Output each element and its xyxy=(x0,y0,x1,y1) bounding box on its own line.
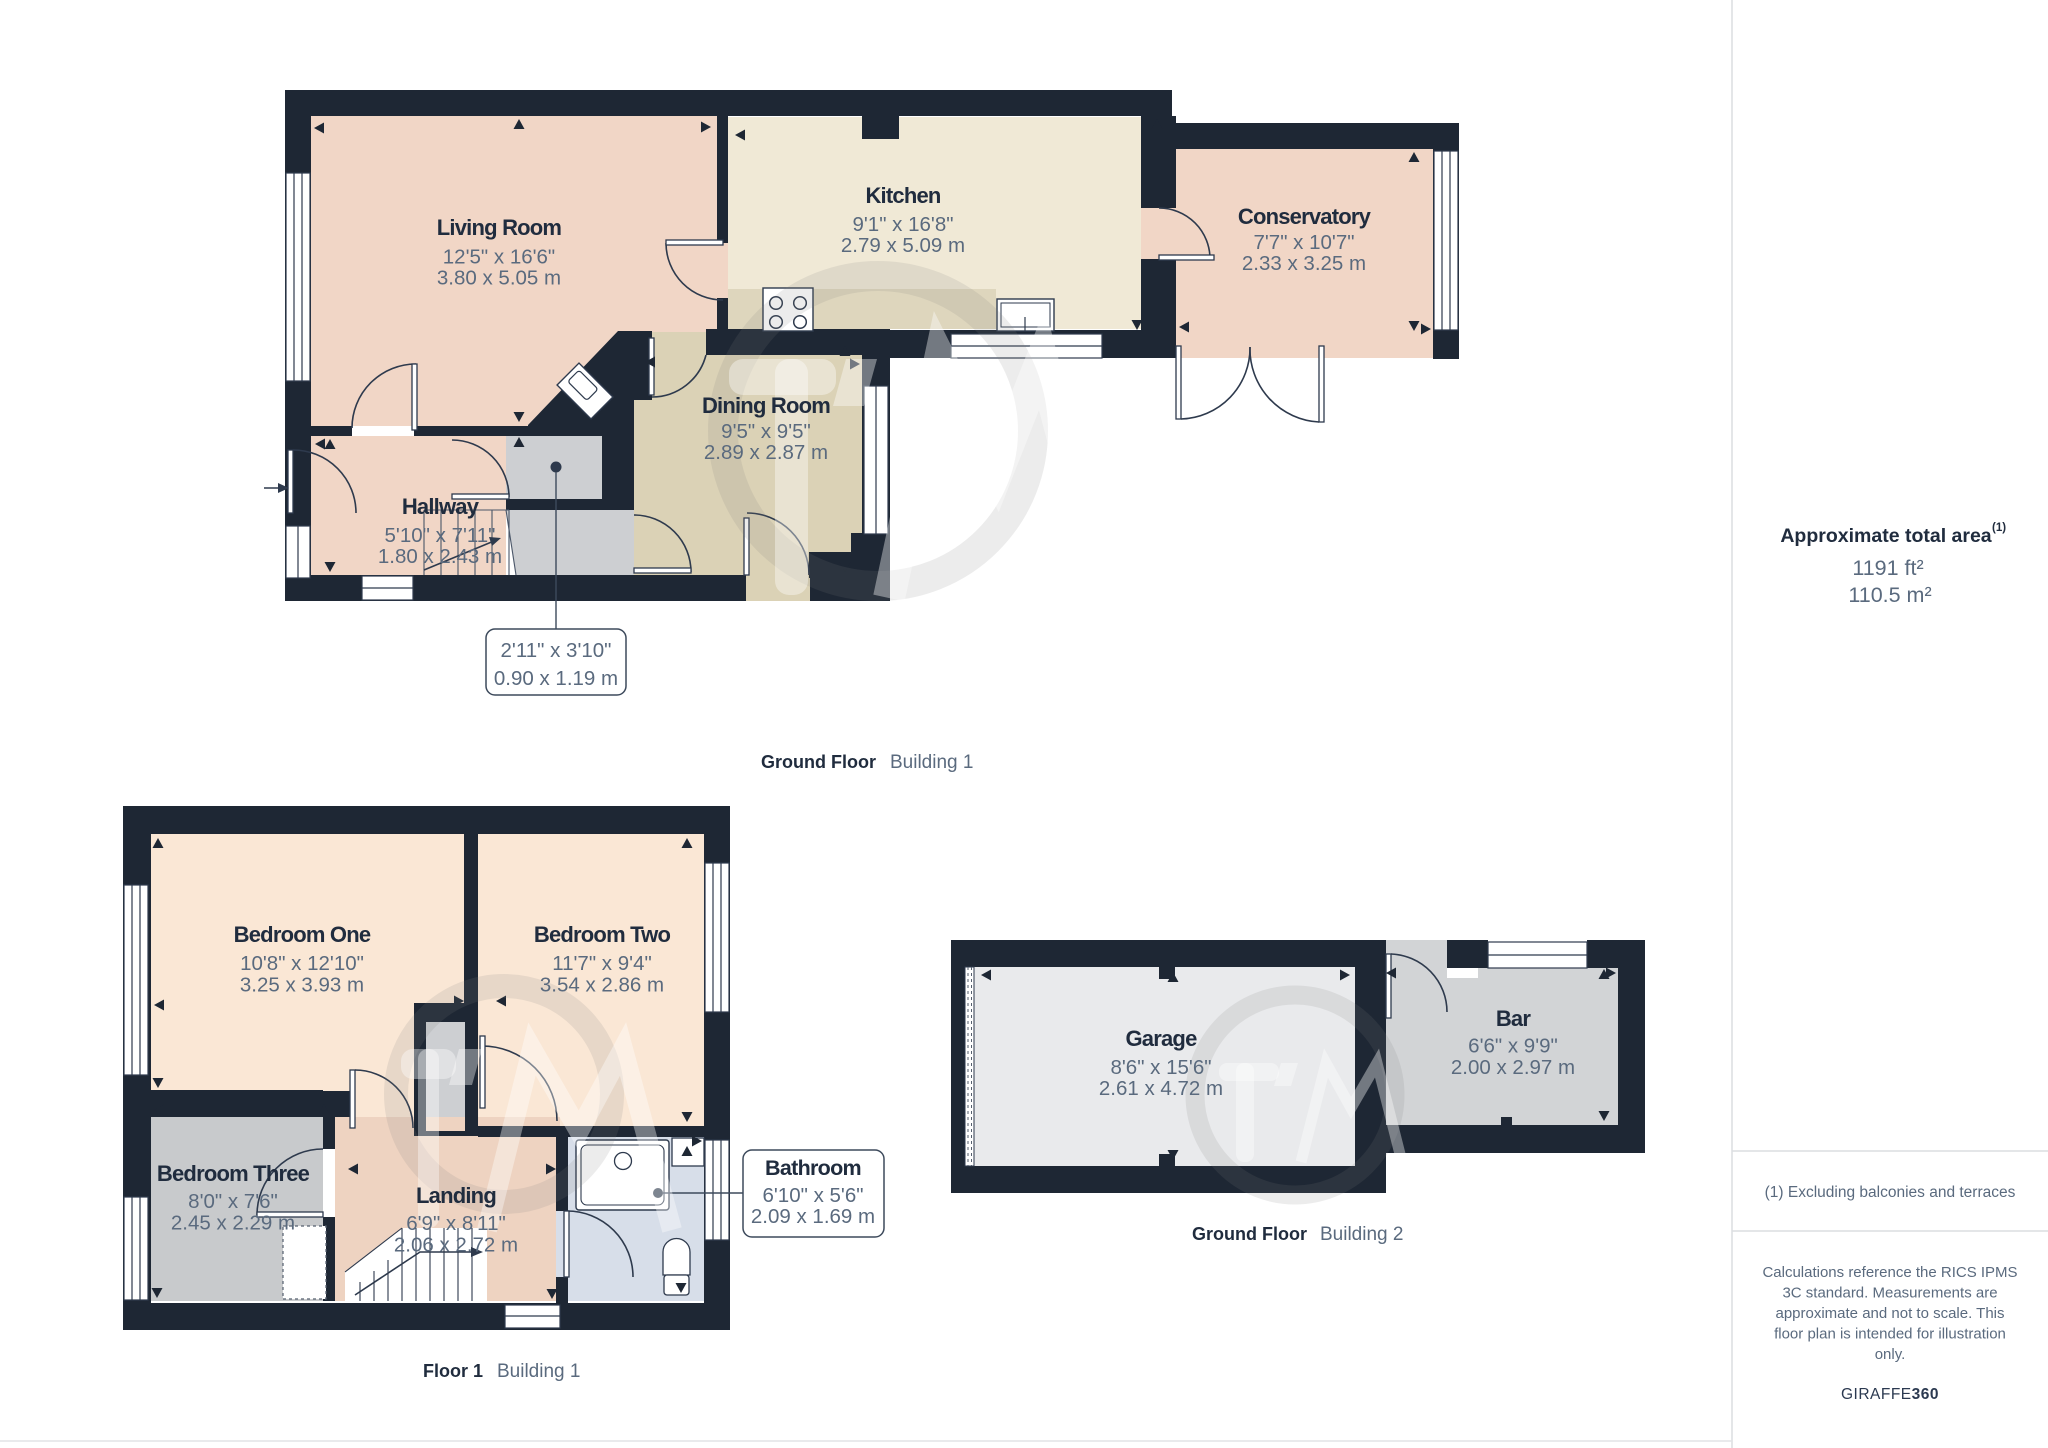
svg-text:Dining Room: Dining Room xyxy=(702,393,830,418)
svg-text:3C standard. Measurements are: 3C standard. Measurements are xyxy=(1782,1285,1997,1302)
svg-text:7'7" x 10'7": 7'7" x 10'7" xyxy=(1253,231,1354,254)
svg-text:Building 1: Building 1 xyxy=(497,1361,580,1382)
svg-text:9'5" x 9'5": 9'5" x 9'5" xyxy=(721,420,811,443)
svg-text:Bedroom Three: Bedroom Three xyxy=(157,1161,310,1186)
svg-text:11'7" x 9'4": 11'7" x 9'4" xyxy=(552,952,652,975)
svg-text:Building 1: Building 1 xyxy=(890,752,973,773)
svg-text:2.45 x 2.29 m: 2.45 x 2.29 m xyxy=(171,1212,295,1235)
svg-text:3.80 x 5.05 m: 3.80 x 5.05 m xyxy=(437,267,561,290)
svg-text:Garage: Garage xyxy=(1125,1026,1197,1051)
svg-text:1.80 x 2.43 m: 1.80 x 2.43 m xyxy=(378,545,502,568)
svg-text:8'0" x 7'6": 8'0" x 7'6" xyxy=(188,1190,278,1213)
svg-text:only.: only. xyxy=(1875,1346,1906,1363)
svg-text:approximate and not to scale.: approximate and not to scale. This xyxy=(1775,1305,2004,1322)
svg-text:(1) Excluding balconies and te: (1) Excluding balconies and terraces xyxy=(1765,1184,2016,1201)
svg-text:2.61 x 4.72 m: 2.61 x 4.72 m xyxy=(1099,1077,1223,1100)
svg-text:2.33 x 3.25 m: 2.33 x 3.25 m xyxy=(1242,252,1366,275)
svg-text:Hallway: Hallway xyxy=(402,494,480,519)
svg-text:GIRAFFE360: GIRAFFE360 xyxy=(1841,1386,1939,1403)
svg-text:floor plan is intended for ill: floor plan is intended for illustration xyxy=(1774,1326,2006,1343)
svg-text:2.79 x 5.09 m: 2.79 x 5.09 m xyxy=(841,234,965,257)
svg-text:2'11" x 3'10": 2'11" x 3'10" xyxy=(501,639,612,662)
svg-text:0.90 x 1.19 m: 0.90 x 1.19 m xyxy=(494,667,618,690)
svg-text:2.89 x 2.87 m: 2.89 x 2.87 m xyxy=(704,441,828,464)
svg-text:6'9" x 8'11": 6'9" x 8'11" xyxy=(406,1212,506,1235)
svg-text:9'1" x 16'8": 9'1" x 16'8" xyxy=(852,213,953,236)
svg-text:2.00 x 2.97 m: 2.00 x 2.97 m xyxy=(1451,1056,1575,1079)
svg-text:8'6" x 15'6": 8'6" x 15'6" xyxy=(1110,1056,1211,1079)
svg-text:3.54 x 2.86 m: 3.54 x 2.86 m xyxy=(540,974,664,997)
svg-text:Landing: Landing xyxy=(416,1183,496,1208)
svg-text:Bathroom: Bathroom xyxy=(765,1156,861,1180)
svg-text:6'10" x 5'6": 6'10" x 5'6" xyxy=(762,1184,863,1207)
svg-text:2.09 x 1.69 m: 2.09 x 1.69 m xyxy=(751,1205,875,1228)
svg-text:Living Room: Living Room xyxy=(437,215,562,240)
svg-text:Bar: Bar xyxy=(1496,1006,1532,1031)
svg-text:1191 ft²: 1191 ft² xyxy=(1852,556,1923,580)
svg-text:12'5" x 16'6": 12'5" x 16'6" xyxy=(443,246,555,269)
svg-text:6'6" x 9'9": 6'6" x 9'9" xyxy=(1468,1035,1558,1058)
svg-text:2.06 x 2.72 m: 2.06 x 2.72 m xyxy=(394,1234,518,1257)
svg-text:5'10" x 7'11": 5'10" x 7'11" xyxy=(385,524,496,547)
svg-text:Ground Floor: Ground Floor xyxy=(761,752,876,772)
svg-text:Conservatory: Conservatory xyxy=(1238,204,1372,229)
svg-text:110.5 m²: 110.5 m² xyxy=(1848,583,1931,607)
svg-text:(1): (1) xyxy=(1992,522,2006,534)
svg-text:Kitchen: Kitchen xyxy=(865,183,940,208)
svg-text:Floor 1: Floor 1 xyxy=(423,1361,483,1381)
svg-text:Bedroom One: Bedroom One xyxy=(234,922,371,947)
svg-text:10'8" x 12'10": 10'8" x 12'10" xyxy=(240,952,364,975)
svg-text:3.25 x 3.93 m: 3.25 x 3.93 m xyxy=(240,974,364,997)
svg-text:Approximate total area: Approximate total area xyxy=(1780,525,1991,547)
svg-text:Bedroom Two: Bedroom Two xyxy=(534,922,671,947)
svg-text:Calculations reference the RIC: Calculations reference the RICS IPMS xyxy=(1762,1264,2017,1281)
svg-text:Building 2: Building 2 xyxy=(1320,1224,1403,1245)
svg-text:Ground Floor: Ground Floor xyxy=(1192,1224,1307,1244)
